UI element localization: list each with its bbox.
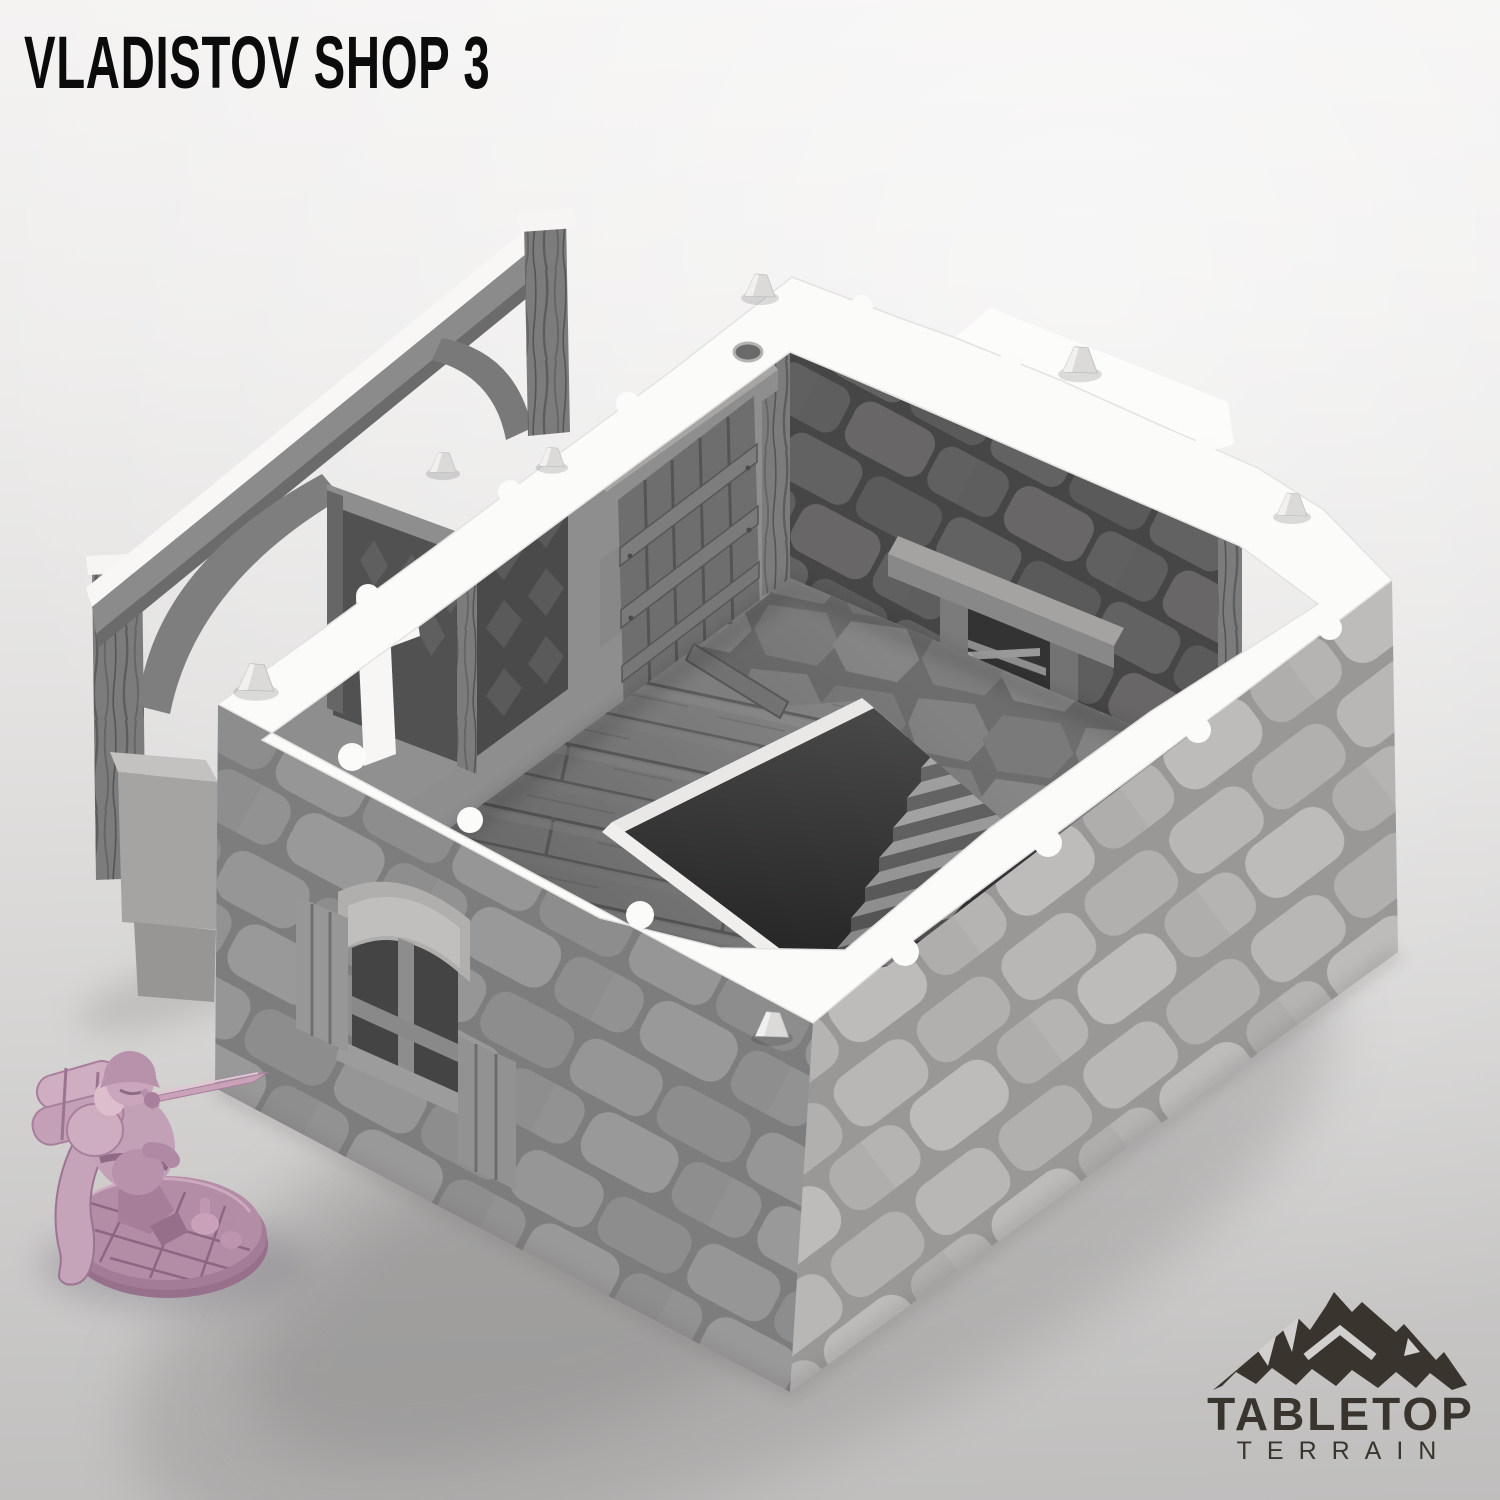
brand-subtitle: TERRAIN [1237,1437,1452,1465]
title-block: VLADISTOV SHOP 3 [24,22,490,104]
arch-right-post [524,218,570,436]
render-scene: VLADISTOV SHOP 3 TABLETOP TERRAIN [0,0,1500,1500]
product-render-page: VLADISTOV SHOP 3 TABLETOP TERRAIN [0,0,1500,1500]
page-title: VLADISTOV SHOP 3 [24,22,490,104]
peg-hole [734,343,762,361]
brand-name: TABLETOP [1207,1388,1475,1440]
